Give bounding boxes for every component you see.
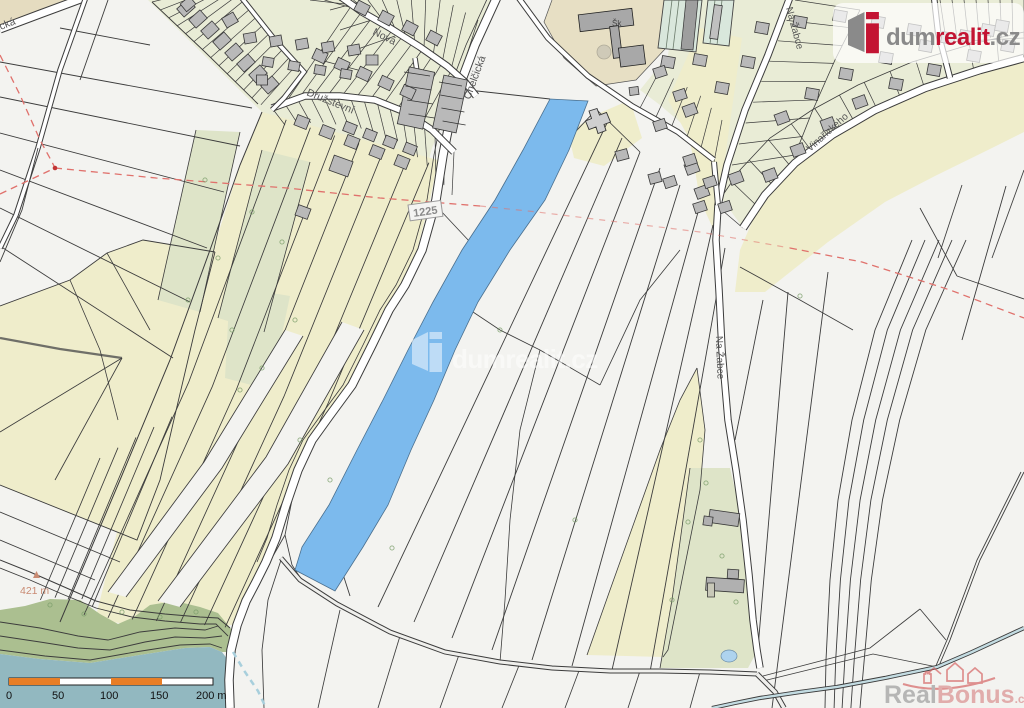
svg-text:150: 150 [150,690,168,702]
svg-text:RealBonus.cz: RealBonus.cz [884,681,1024,708]
svg-text:421 m: 421 m [20,585,49,597]
svg-text:dumrealit.cz: dumrealit.cz [886,24,1021,51]
svg-text:100: 100 [100,690,118,702]
svg-text:0: 0 [6,690,12,702]
svg-text:Šk: Šk [612,19,622,28]
svg-text:dumrealit.cz: dumrealit.cz [452,344,598,374]
svg-text:50: 50 [52,690,64,702]
svg-text:200 m: 200 m [196,690,227,702]
